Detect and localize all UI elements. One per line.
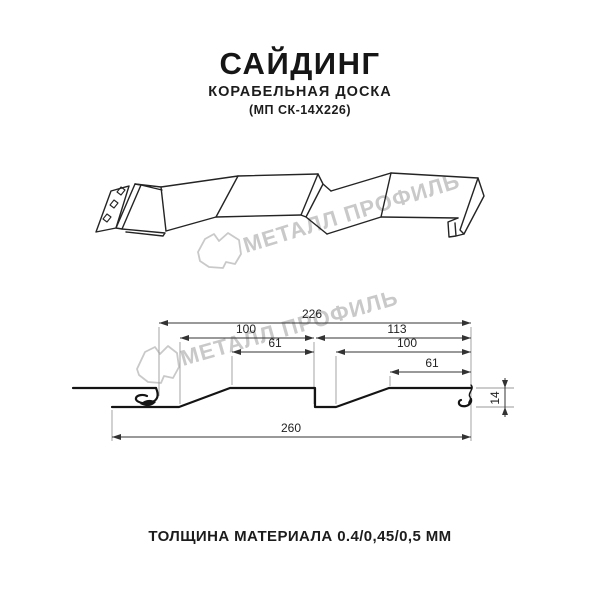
lock-crest-side xyxy=(135,184,166,231)
brand-logo-icon xyxy=(198,233,241,268)
dim-arrow xyxy=(502,380,508,388)
panel-profile-line xyxy=(112,388,471,407)
dim-label: 226 xyxy=(302,307,322,321)
dim-label: 61 xyxy=(425,356,439,370)
hem-edge xyxy=(122,229,165,236)
dim-arrow xyxy=(502,407,508,415)
dimension-14: 14 xyxy=(488,378,508,417)
dim-label: 260 xyxy=(281,421,301,435)
dim-label: 100 xyxy=(397,336,417,350)
dimension-260: 260 xyxy=(112,421,471,437)
technical-drawing-canvas: МЕТАЛЛ ПРОФИЛЬ МЕТАЛЛ ПРОФИЛЬ xyxy=(0,0,600,600)
dim-label: 113 xyxy=(387,322,406,336)
dim-label: 14 xyxy=(488,391,502,405)
page-root: САЙДИНГ КОРАБЕЛЬНАЯ ДОСКА (МП СК-14Х226)… xyxy=(0,0,600,600)
thickness-note: ТОЛЩИНА МАТЕРИАЛА 0.4/0,45/0,5 ММ xyxy=(0,528,600,545)
end-cut-face xyxy=(460,178,484,234)
brand-watermark-text: МЕТАЛЛ ПРОФИЛЬ xyxy=(177,285,401,371)
brand-watermark-text: МЕТАЛЛ ПРОФИЛЬ xyxy=(240,168,463,258)
section-profile xyxy=(73,385,472,407)
brand-logo-icon xyxy=(137,346,179,383)
lock-crest xyxy=(116,184,141,229)
dimension-226: 226 xyxy=(159,307,471,323)
lock-curl-fill xyxy=(140,400,156,406)
board1-slope xyxy=(161,176,238,231)
dim-label: 100 xyxy=(236,322,256,336)
dimension-61-right: 61 xyxy=(390,356,471,372)
extension-lines xyxy=(112,327,514,441)
dim-label: 61 xyxy=(268,336,282,350)
brand-watermark-lower: МЕТАЛЛ ПРОФИЛЬ xyxy=(137,285,401,383)
